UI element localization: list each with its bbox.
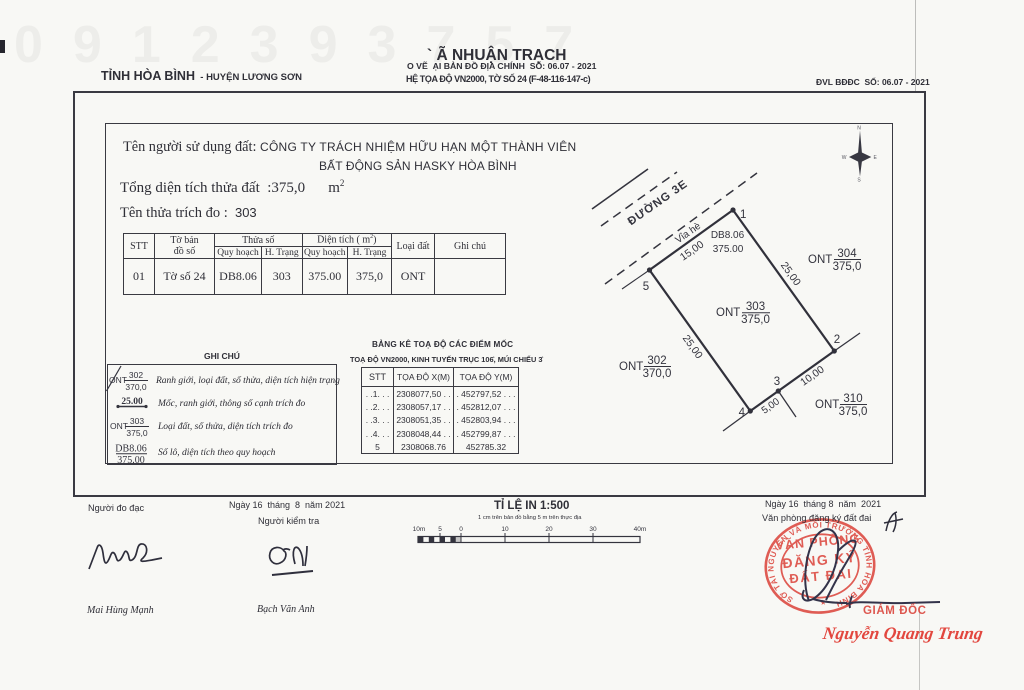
svg-text:Mốc, ranh giới, thông số cạnh: Mốc, ranh giới, thông số cạnh trích đo — [157, 398, 306, 409]
svg-text:DB8.06: DB8.06 — [711, 230, 745, 241]
svg-text:310: 310 — [843, 393, 862, 405]
svg-text:303: 303 — [746, 301, 765, 313]
svg-text:30: 30 — [589, 526, 597, 533]
svg-text:W: W — [842, 155, 847, 161]
svg-text:375.00: 375.00 — [117, 455, 145, 466]
svg-text:ONT: ONT — [808, 254, 832, 266]
svg-text:10m: 10m — [413, 526, 426, 533]
svg-text:0: 0 — [459, 526, 463, 533]
svg-text:ONT: ONT — [815, 399, 839, 411]
svg-text:S: S — [857, 178, 861, 184]
svg-text:2: 2 — [834, 334, 840, 346]
svg-text:5,00: 5,00 — [760, 396, 783, 417]
svg-text:Loại đất, số thửa, diện tích t: Loại đất, số thửa, diện tích trích đo — [157, 421, 293, 432]
svg-text:40m: 40m — [634, 526, 647, 533]
svg-text:304: 304 — [837, 248, 857, 260]
svg-text:375,0: 375,0 — [741, 314, 770, 326]
svg-text:25.00: 25.00 — [121, 397, 143, 407]
svg-text:5: 5 — [438, 526, 442, 533]
svg-text:20: 20 — [545, 526, 553, 533]
svg-text:302: 302 — [129, 370, 143, 380]
svg-text:375,0: 375,0 — [833, 261, 862, 273]
svg-text:Ranh giới, loại đất, số thửa,: Ranh giới, loại đất, số thửa, diện tích … — [155, 375, 340, 386]
svg-text:3: 3 — [774, 376, 780, 388]
svg-text:370,0: 370,0 — [643, 368, 672, 380]
svg-text:E: E — [874, 155, 878, 161]
svg-text:ONT: ONT — [716, 307, 740, 319]
svg-text:Số lô, diện tích theo quy hoạc: Số lô, diện tích theo quy hoạch — [158, 447, 276, 458]
svg-text:ĐƯỜNG 3E: ĐƯỜNG 3E — [625, 177, 690, 228]
svg-text:370,0: 370,0 — [125, 382, 147, 392]
svg-text:25,00: 25,00 — [778, 260, 803, 288]
svg-text:N: N — [857, 126, 861, 132]
svg-text:ONT: ONT — [619, 361, 643, 373]
svg-text:5: 5 — [643, 281, 649, 293]
svg-text:1: 1 — [740, 209, 746, 221]
svg-text:4: 4 — [739, 407, 746, 419]
svg-text:375,0: 375,0 — [126, 428, 148, 438]
svg-text:10: 10 — [501, 526, 509, 533]
svg-text:302: 302 — [647, 355, 666, 367]
svg-text:25,00: 25,00 — [680, 333, 705, 361]
svg-text:375.00: 375.00 — [713, 244, 744, 255]
svg-text:303: 303 — [130, 416, 144, 426]
svg-text:375,0: 375,0 — [839, 406, 868, 418]
svg-text:DB8.06: DB8.06 — [115, 444, 146, 455]
